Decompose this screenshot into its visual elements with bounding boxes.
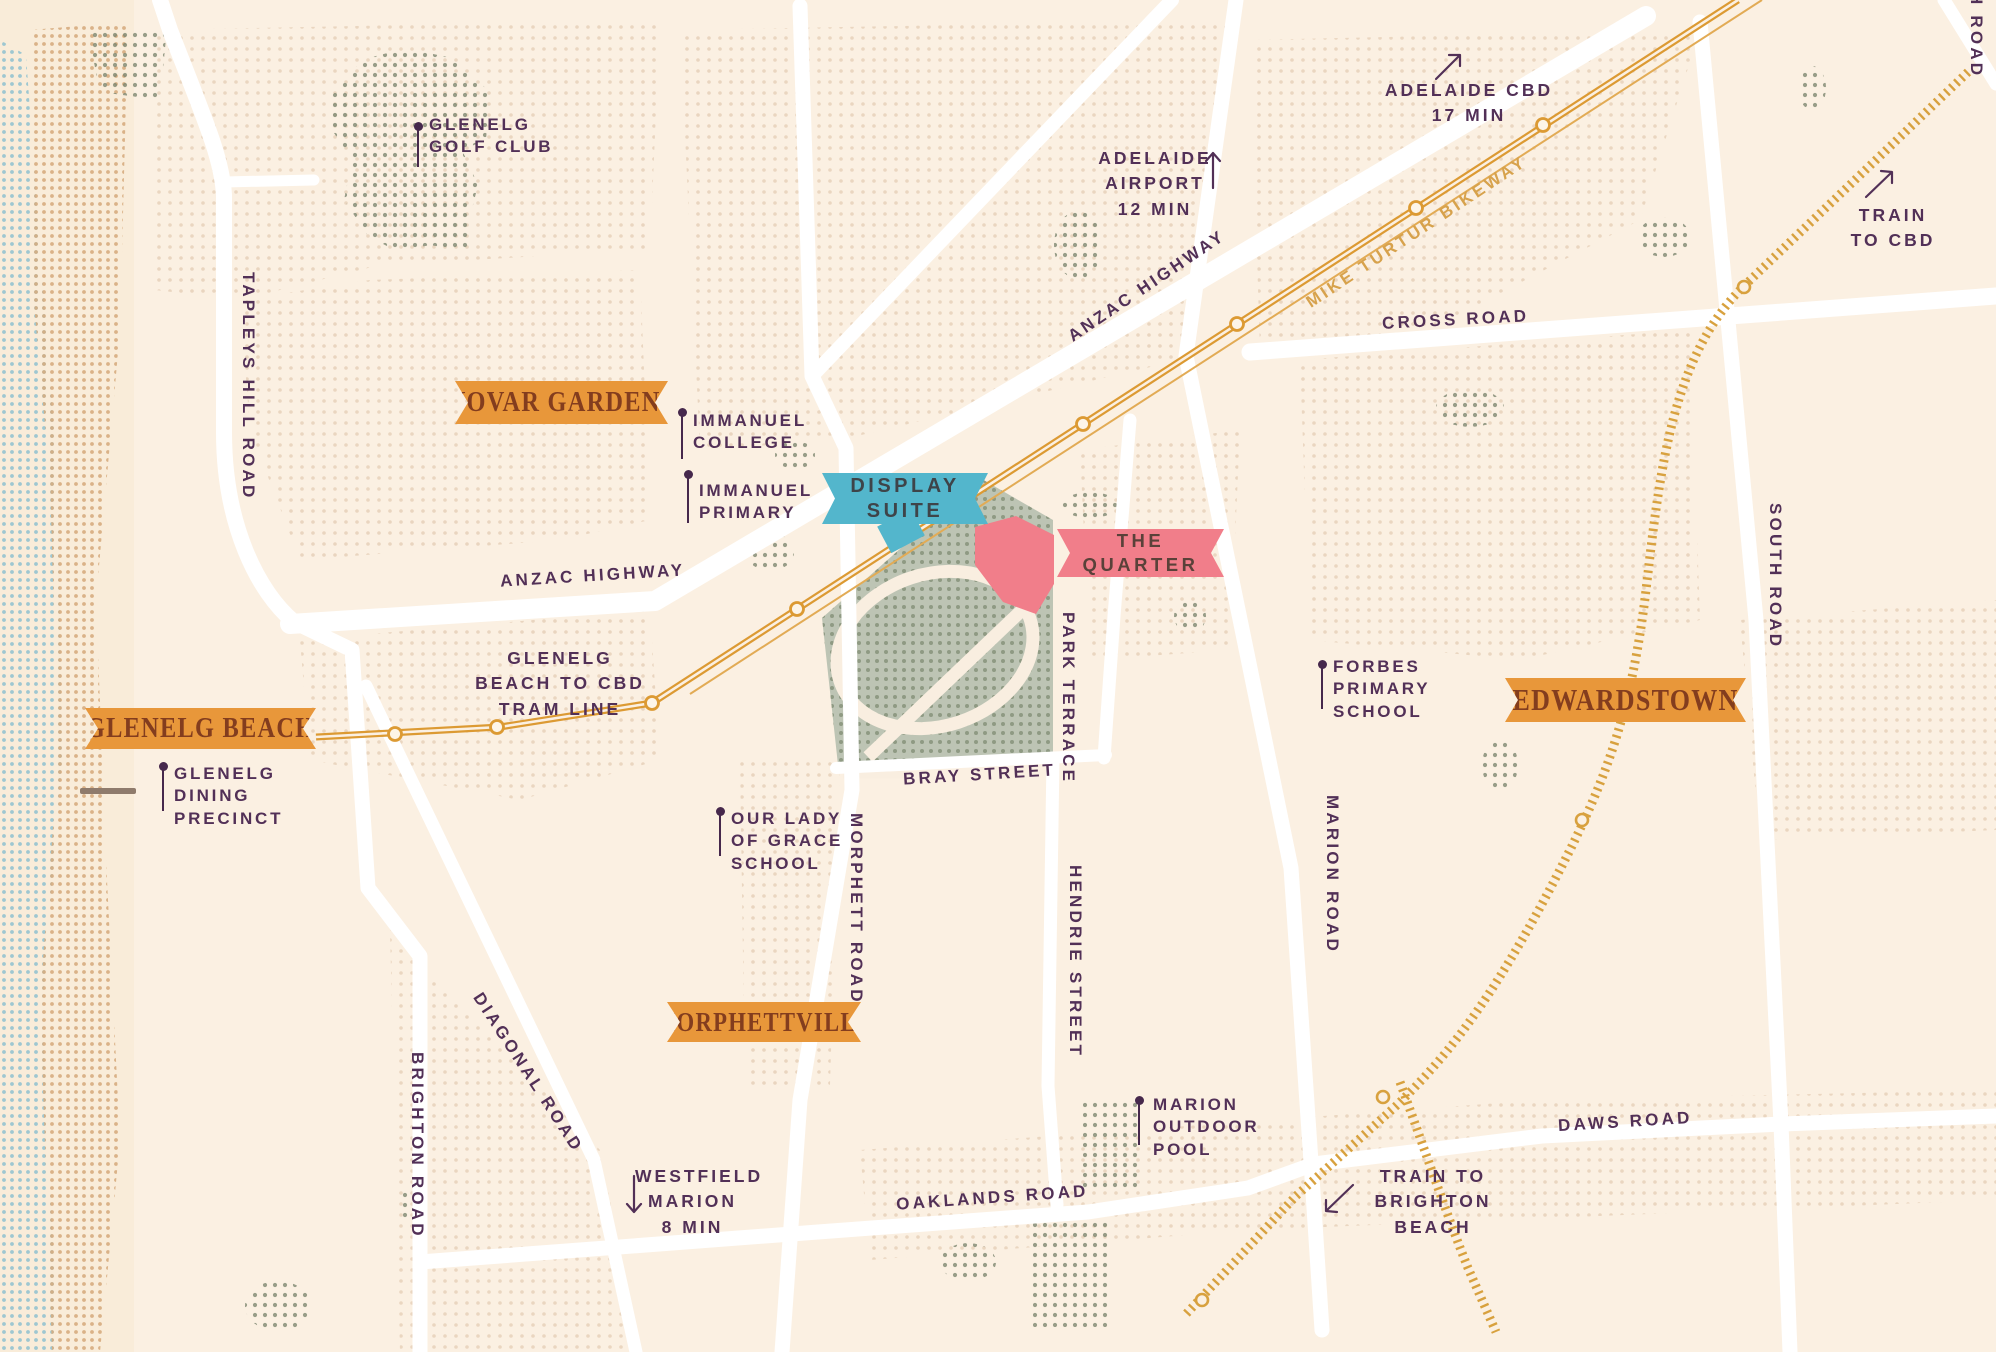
airport-line2: AIRPORT: [1105, 173, 1205, 193]
airport-line1: ADELAIDE: [1098, 148, 1211, 168]
forbes-line2: PRIMARY: [1333, 678, 1430, 700]
train-cbd-line1: TRAIN: [1859, 205, 1927, 225]
train-brighton-line1: TRAIN TO: [1380, 1166, 1486, 1186]
pin-stem-icon: [417, 129, 419, 167]
westfield-line3: 8 MIN: [662, 1217, 724, 1237]
westfield-line2: MARION: [648, 1191, 737, 1211]
golf-line1: GLENELG: [429, 114, 553, 136]
suburb-banner-edwardstown: EDWARDSTOWN: [1505, 678, 1746, 722]
tram-label-line2: BEACH TO CBD: [475, 673, 645, 693]
road-label-morphett: MORPHETT ROAD: [844, 813, 868, 1005]
road-label-brighton: BRIGHTON ROAD: [405, 1052, 429, 1239]
tram-label-line1: GLENELG: [507, 648, 613, 668]
novar-gardens-label: NOVAR GARDENS: [448, 386, 676, 419]
forbes-line3: SCHOOL: [1333, 701, 1430, 723]
pool-line1: MARION: [1153, 1094, 1259, 1116]
pin-stem-icon: [162, 769, 164, 811]
college-line2: COLLEGE: [693, 432, 807, 454]
map-geometry: [0, 0, 1996, 1352]
pin-stem-icon: [681, 415, 683, 459]
primary-line1: IMMANUEL: [699, 480, 813, 502]
suburb-banner-novar-gardens: NOVAR GARDENS: [455, 381, 668, 424]
pin-stem-icon: [687, 477, 689, 523]
the-quarter-line2: QUARTER: [1083, 553, 1199, 577]
road-label-hendrie: HENDRIE STREET: [1063, 865, 1087, 1058]
train-brighton-line2: BRIGHTON: [1374, 1191, 1491, 1211]
map-canvas: TAPLEYS HILL ROAD ANZAC HIGHWAY ANZAC HI…: [0, 0, 1996, 1352]
road-label-marion: MARION ROAD: [1320, 795, 1344, 954]
airport-line3: 12 MIN: [1118, 199, 1192, 219]
pin-stem-icon: [1138, 1103, 1140, 1145]
tram-label-line3: TRAM LINE: [499, 699, 621, 719]
ourlady-line3: SCHOOL: [731, 853, 843, 875]
tram-line-label: GLENELG BEACH TO CBD TRAM LINE: [465, 646, 655, 722]
edwardstown-label: EDWARDSTOWN: [1512, 682, 1738, 718]
cbd-line2: 17 MIN: [1432, 105, 1506, 125]
golf-line2: GOLF CLUB: [429, 136, 553, 158]
glenelg-beach-label: GLENELG BEACH: [86, 712, 316, 745]
pin-stem-icon: [719, 814, 721, 856]
morphettville-label: MORPHETTVILLE: [654, 1007, 873, 1038]
primary-line2: PRIMARY: [699, 502, 813, 524]
direction-adelaide-cbd: ADELAIDE CBD 17 MIN: [1384, 78, 1554, 129]
pin-stem-icon: [1321, 667, 1323, 709]
westfield-line1: WESTFIELD: [635, 1166, 763, 1186]
glenelg-jetty: [80, 788, 136, 794]
road-label-park-terrace: PARK TERRACE: [1056, 612, 1080, 784]
the-quarter-line1: THE: [1083, 529, 1199, 553]
ourlady-line1: OUR LADY: [731, 808, 843, 830]
direction-train-brighton: TRAIN TO BRIGHTON BEACH: [1363, 1164, 1503, 1240]
train-brighton-line3: BEACH: [1394, 1217, 1471, 1237]
dining-line1: GLENELG: [174, 763, 283, 785]
cbd-line1: ADELAIDE CBD: [1385, 80, 1553, 100]
road-label-south: SOUTH ROAD: [1763, 503, 1787, 649]
the-quarter-banner: THE QUARTER: [1057, 529, 1224, 577]
train-cbd-line2: TO CBD: [1851, 230, 1936, 250]
direction-westfield: WESTFIELD MARION 8 MIN: [635, 1164, 750, 1240]
forbes-line1: FORBES: [1333, 656, 1430, 678]
dining-line3: PRECINCT: [174, 808, 283, 830]
ourlady-line2: OF GRACE: [731, 830, 843, 852]
direction-adelaide-airport: ADELAIDE AIRPORT 12 MIN: [1090, 146, 1220, 222]
college-line1: IMMANUEL: [693, 410, 807, 432]
arrow-train-cbd-icon: [1866, 171, 1892, 197]
road-hendrie: [1048, 758, 1057, 1205]
beach-strip: [0, 0, 134, 1352]
suburb-banner-morphettville: MORPHETTVILLE: [667, 1002, 861, 1042]
dining-line2: DINING: [174, 785, 283, 807]
display-suite-line1: DISPLAY: [850, 474, 959, 499]
direction-train-cbd: TRAIN TO CBD: [1843, 203, 1943, 254]
pool-line2: OUTDOOR: [1153, 1116, 1259, 1138]
pool-line3: POOL: [1153, 1139, 1259, 1161]
display-suite-line2: SUITE: [850, 499, 959, 524]
marion-pool-grounds: [1083, 1100, 1140, 1188]
display-suite-banner: DISPLAY SUITE: [822, 473, 988, 524]
road-label-tapleys-hill: TAPLEYS HILL ROAD: [236, 272, 260, 501]
suburb-banner-glenelg-beach: GLENELG BEACH: [85, 708, 316, 749]
road-label-south-corner: SOUTH ROAD: [1964, 0, 1988, 78]
